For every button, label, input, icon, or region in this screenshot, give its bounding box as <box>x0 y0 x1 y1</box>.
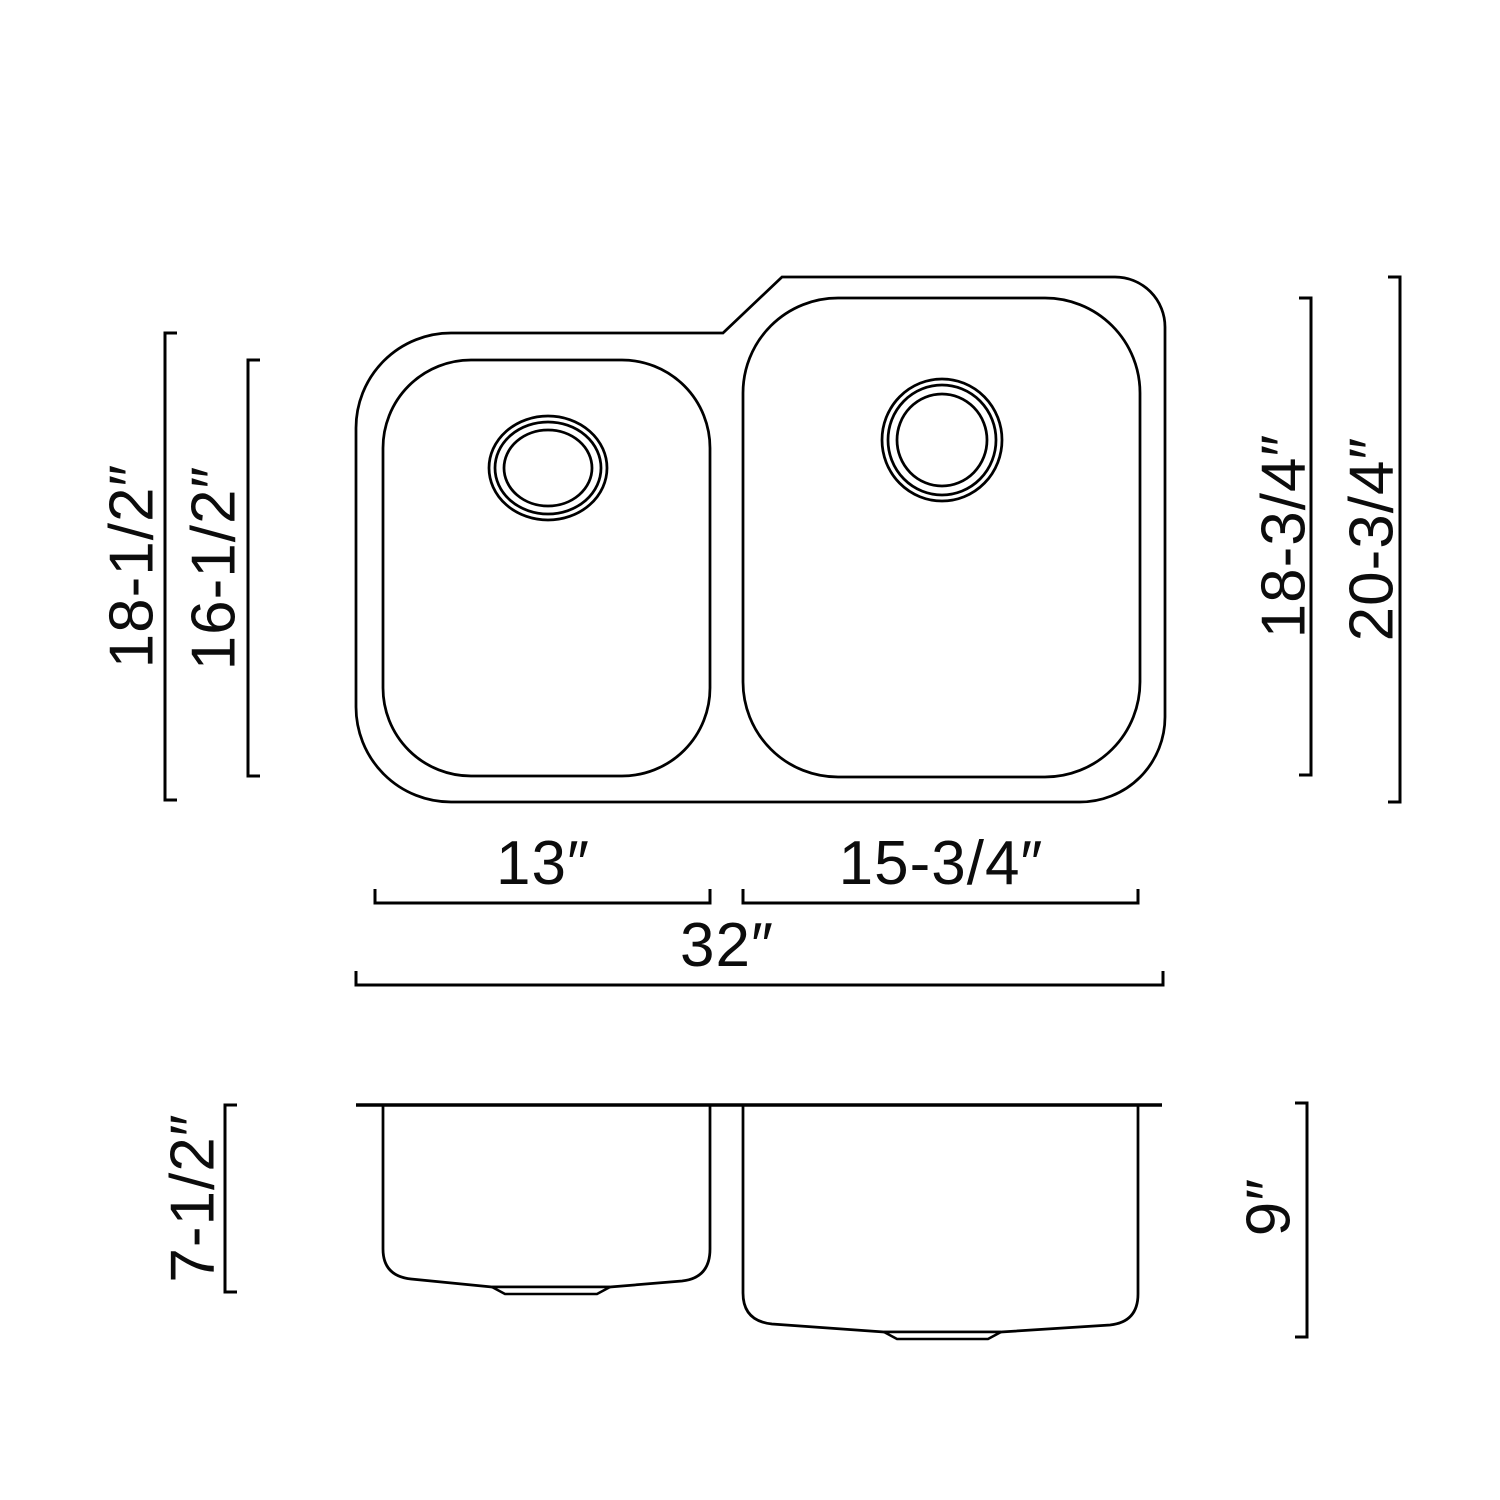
dim-label: 16-1/2″ <box>180 466 249 671</box>
side-view: 7-1/2″ 9″ <box>159 1103 1307 1339</box>
dim-label: 32″ <box>680 911 774 980</box>
sink-dimension-diagram: 18-1/2″ 16-1/2″ 18-3/4″ 20-3/4″ 13″ <box>0 0 1500 1500</box>
left-bowl-profile <box>383 1106 710 1287</box>
dim-label: 15-3/4″ <box>839 829 1044 898</box>
right-drain-outer-ring <box>882 379 1002 501</box>
dim-bracket <box>248 360 260 776</box>
dim-label: 9″ <box>1235 1178 1304 1236</box>
sink-rim-outline <box>356 277 1165 802</box>
right-drain <box>882 379 1002 501</box>
dim-bowl-height-left: 16-1/2″ <box>180 360 260 776</box>
dim-bracket <box>165 333 177 800</box>
left-drain-middle-ring <box>495 422 601 514</box>
sink-dimension-diagram-page: 18-1/2″ 16-1/2″ 18-3/4″ 20-3/4″ 13″ <box>0 0 1500 1500</box>
dim-overall-width: 32″ <box>356 911 1163 985</box>
dim-bowl-height-right: 18-3/4″ <box>1250 298 1319 775</box>
right-drain-fitting <box>884 1332 1001 1339</box>
dim-label: 13″ <box>496 829 590 898</box>
right-bowl-profile <box>743 1106 1138 1332</box>
right-drain-middle-ring <box>888 385 996 495</box>
dim-depth-right: 9″ <box>1235 1103 1307 1337</box>
top-view: 18-1/2″ 16-1/2″ 18-3/4″ 20-3/4″ 13″ <box>98 277 1407 985</box>
dim-label: 18-3/4″ <box>1250 434 1319 639</box>
dim-depth-left: 7-1/2″ <box>159 1105 237 1292</box>
dim-bowl-width-left: 13″ <box>375 829 710 903</box>
dim-overall-height-right: 20-3/4″ <box>1338 277 1407 802</box>
left-drain-inner-ring <box>504 430 592 506</box>
left-drain-fitting <box>492 1287 610 1294</box>
dim-label: 20-3/4″ <box>1338 437 1407 642</box>
left-drain <box>489 416 607 520</box>
right-drain-inner-ring <box>897 394 987 486</box>
dim-overall-height-left: 18-1/2″ <box>98 333 177 800</box>
right-bowl-outline <box>743 298 1140 777</box>
dim-label: 18-1/2″ <box>98 464 167 669</box>
left-drain-outer-ring <box>489 416 607 520</box>
dim-label: 7-1/2″ <box>159 1113 228 1282</box>
dim-bowl-width-right: 15-3/4″ <box>743 829 1138 903</box>
